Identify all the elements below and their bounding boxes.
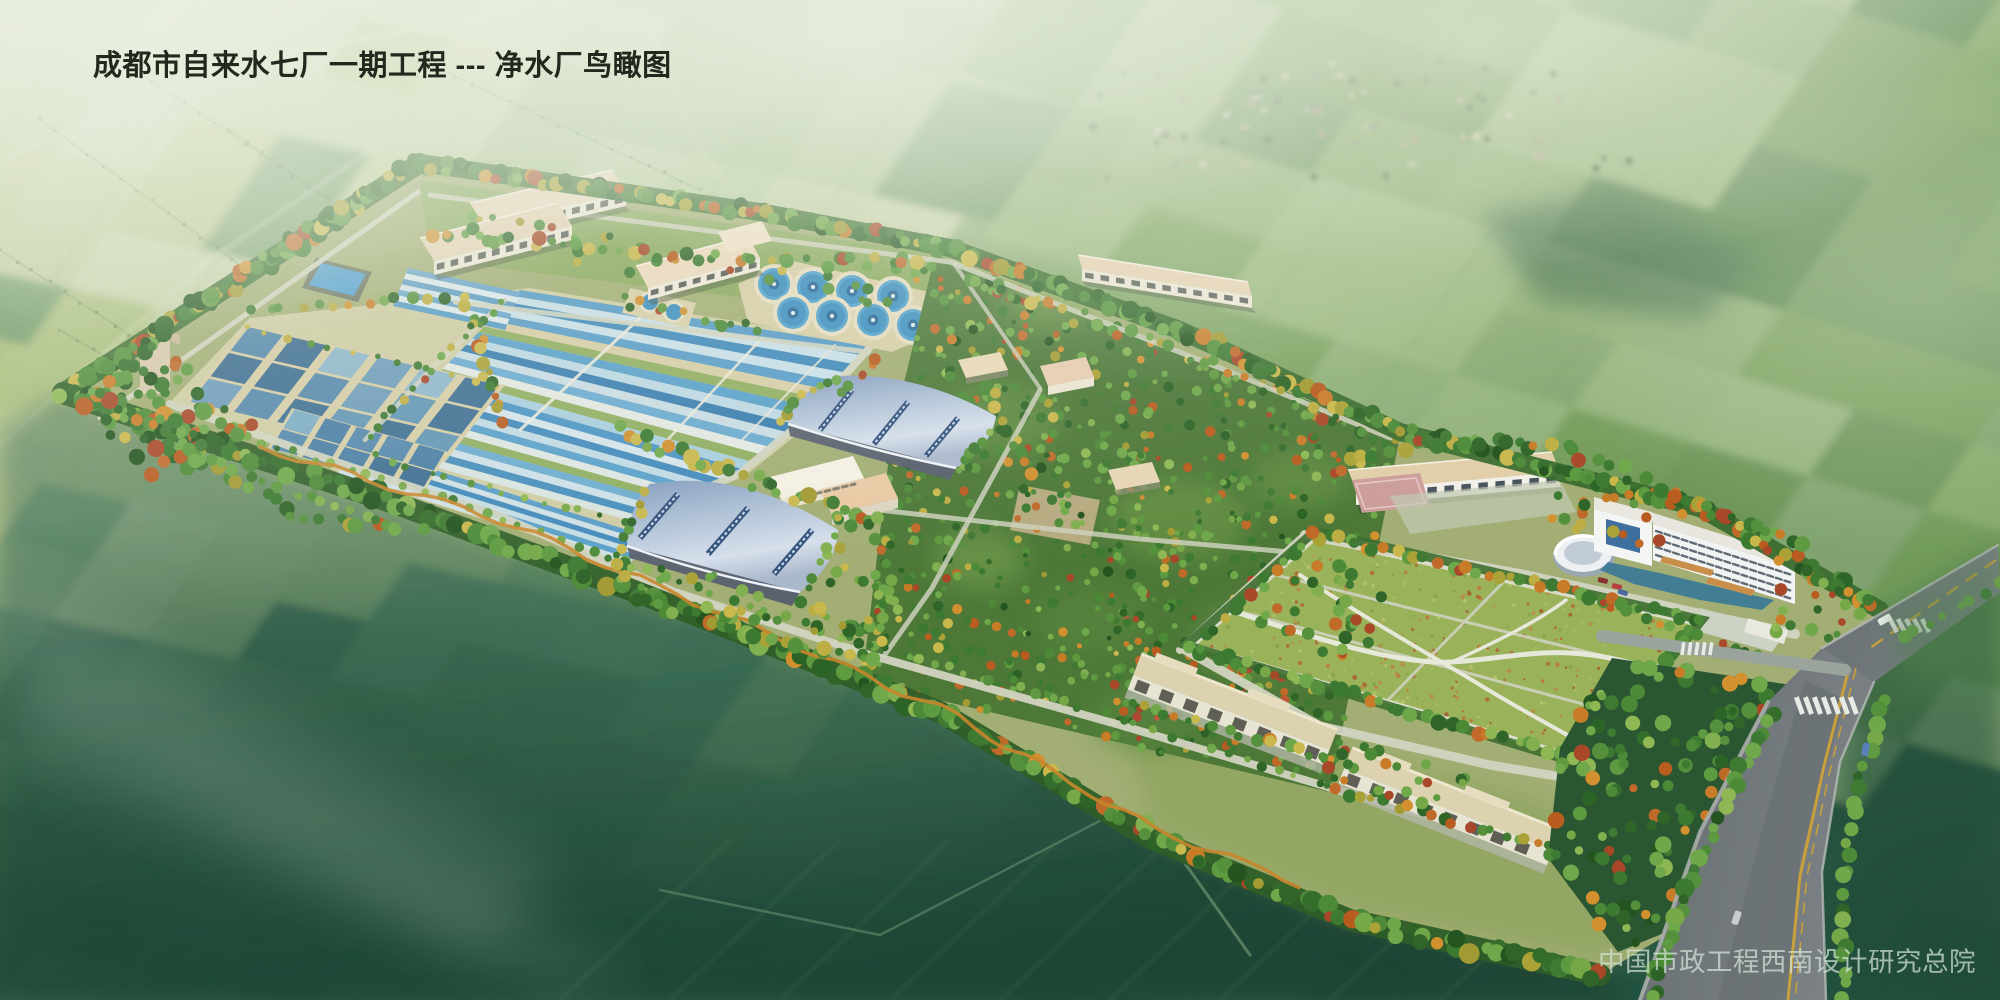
- svg-text:中国市政工程西南设计研究总院: 中国市政工程西南设计研究总院: [1598, 947, 1976, 977]
- svg-text:成都市自来水七厂一期工程 --- 净水厂鸟瞰图: 成都市自来水七厂一期工程 --- 净水厂鸟瞰图: [93, 48, 672, 82]
